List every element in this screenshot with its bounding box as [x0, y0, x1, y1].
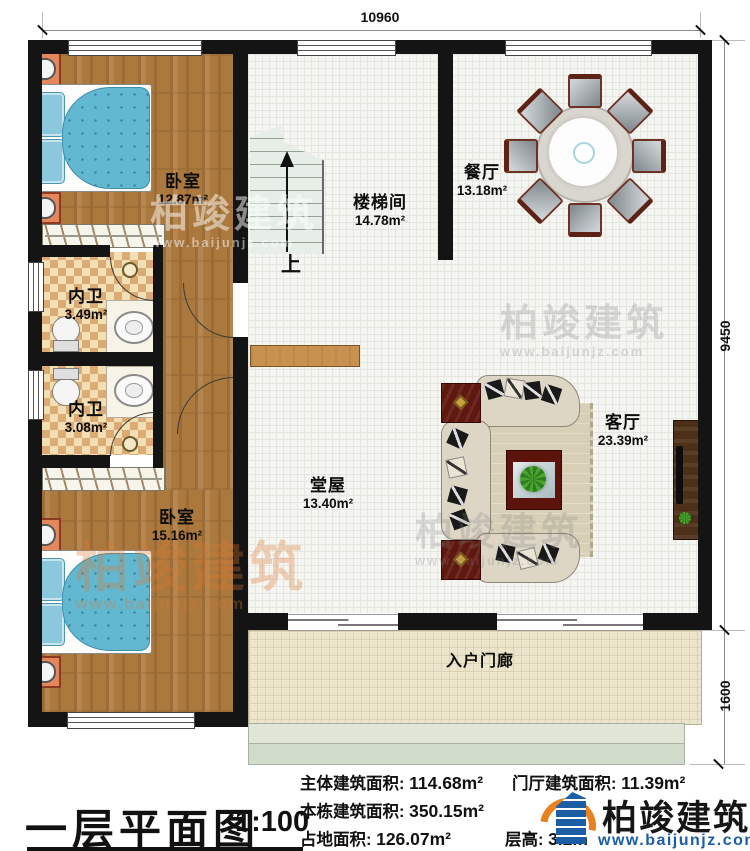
room-name: 楼梯间 — [325, 193, 435, 213]
floor-plan-canvas: 上 — [0, 0, 750, 851]
drawing-title: 一层平面图 — [25, 796, 260, 851]
label-dining: 餐厅 13.18m² — [430, 163, 534, 199]
label-bathroom2: 内卫 3.08m² — [38, 400, 134, 436]
logo-url: www.baijunjz.com — [598, 832, 750, 850]
stairs-direction-arrow — [286, 166, 288, 252]
toilet-tank-icon — [53, 340, 79, 352]
stat-building-area: 本栋建筑面积: 350.15m² — [300, 798, 484, 822]
label-bathroom1: 内卫 3.49m² — [38, 287, 134, 323]
stat-value: 114.68m² — [409, 773, 483, 793]
dim-stub — [42, 12, 43, 38]
room-name: 内卫 — [38, 287, 134, 307]
window — [297, 40, 396, 56]
room-area: 23.39m² — [568, 433, 678, 449]
side-table-icon — [441, 540, 481, 580]
stat-label: 主体建筑面积: — [300, 775, 405, 793]
porch-step-upper — [248, 723, 685, 745]
side-table-icon — [441, 383, 481, 423]
room-area: 3.08m² — [38, 420, 134, 436]
plant-icon — [520, 466, 546, 492]
porch-step-lower — [248, 743, 685, 765]
label-bedroom2: 卧室 15.16m² — [122, 508, 232, 544]
room-area: 13.18m² — [430, 183, 534, 199]
wall-right — [698, 40, 712, 630]
sofa-pillow-icon — [523, 381, 542, 400]
room-area: 13.40m² — [276, 496, 380, 512]
room-area: 14.78m² — [325, 213, 435, 229]
room-name: 堂屋 — [276, 476, 380, 496]
wall-bath2-bottom — [28, 455, 110, 468]
stat-label: 层高: — [505, 831, 544, 849]
window — [67, 712, 195, 729]
label-bedroom1: 卧室 12.87m² — [128, 172, 238, 208]
sofa-pillow-icon — [445, 456, 468, 479]
wall-stair-dining — [438, 54, 453, 260]
room-name: 入户门廊 — [400, 653, 560, 672]
dining-chair-icon — [632, 139, 666, 173]
dim-right-porch-label: 1600 — [717, 668, 733, 724]
title-underline — [27, 847, 303, 851]
duvet-icon — [62, 553, 150, 651]
stairs-up-label: 上 — [281, 248, 301, 277]
room-area: 15.16m² — [122, 528, 232, 544]
dim-top-label: 10960 — [330, 9, 430, 25]
dim-line-top — [42, 30, 700, 31]
wall-hall-bottom-1 — [233, 613, 288, 630]
bed-icon — [28, 550, 152, 654]
room-area: 3.49m² — [38, 307, 134, 323]
entry-porch-floor — [248, 630, 702, 725]
dim-stub — [700, 12, 701, 38]
room-area: 12.87m² — [128, 192, 238, 208]
dining-chair-icon — [568, 74, 602, 108]
wall-bath-divider — [28, 352, 157, 366]
plant-icon — [679, 512, 691, 524]
room-name: 餐厅 — [430, 163, 534, 183]
drawing-scale: 1:100 — [235, 806, 309, 839]
stairs-arrow-head-icon — [280, 151, 294, 167]
wall-inner-vertical-b — [233, 337, 248, 727]
stat-value: 126.07m² — [376, 829, 451, 849]
sofa-pillow-icon — [495, 543, 515, 563]
wardrobe-icon — [42, 467, 165, 491]
sliding-door — [497, 614, 643, 631]
dining-chair-icon — [568, 203, 602, 237]
sofa-pillow-icon — [503, 377, 525, 399]
stat-label: 占地面积: — [300, 831, 372, 849]
label-stairwell: 楼梯间 14.78m² — [325, 193, 435, 229]
room-name: 内卫 — [38, 400, 134, 420]
room-name: 卧室 — [128, 172, 238, 192]
wall-hall-bottom-2 — [398, 613, 497, 630]
dim-right-main-label: 9450 — [717, 306, 733, 366]
dining-table-center — [573, 142, 595, 164]
room-name: 卧室 — [122, 508, 232, 528]
stat-main-area: 主体建筑面积: 114.68m² — [300, 770, 483, 794]
room-name: 客厅 — [568, 413, 678, 433]
wall-bath1-top — [28, 245, 110, 257]
window — [505, 40, 652, 56]
stat-value: 350.15m² — [409, 801, 484, 821]
sliding-door — [288, 614, 398, 631]
company-logo: 柏竣建筑 www.baijunjz.com — [540, 790, 740, 850]
window — [68, 40, 202, 56]
wall-bath-corridor — [153, 245, 163, 468]
wall-hall-bottom-3 — [643, 613, 712, 630]
toilet-tank-icon — [53, 368, 79, 380]
stat-footprint-area: 占地面积: 126.07m² — [300, 826, 451, 850]
stat-label: 本栋建筑面积: — [300, 803, 405, 821]
label-porch: 入户门廊 — [400, 653, 560, 672]
label-living: 客厅 23.39m² — [568, 413, 678, 449]
console-counter-icon — [250, 345, 360, 367]
label-hall: 堂屋 13.40m² — [276, 476, 380, 512]
tv-icon — [676, 446, 683, 504]
wall-inner-vertical-a — [233, 54, 248, 283]
